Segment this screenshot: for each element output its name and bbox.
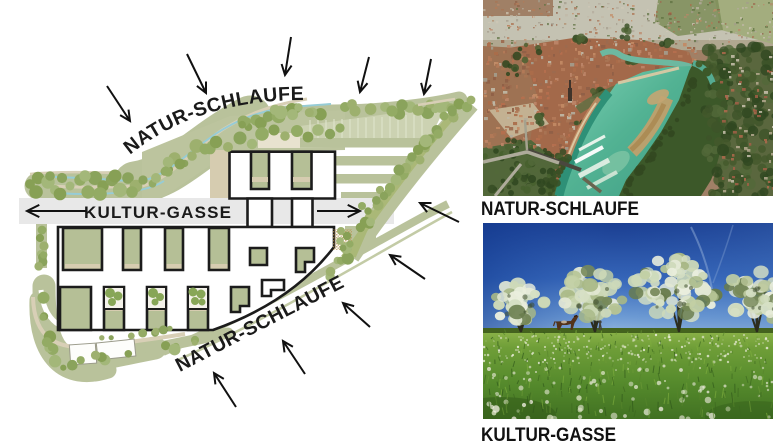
svg-text:KULTUR-GASSE: KULTUR-GASSE — [84, 203, 232, 222]
